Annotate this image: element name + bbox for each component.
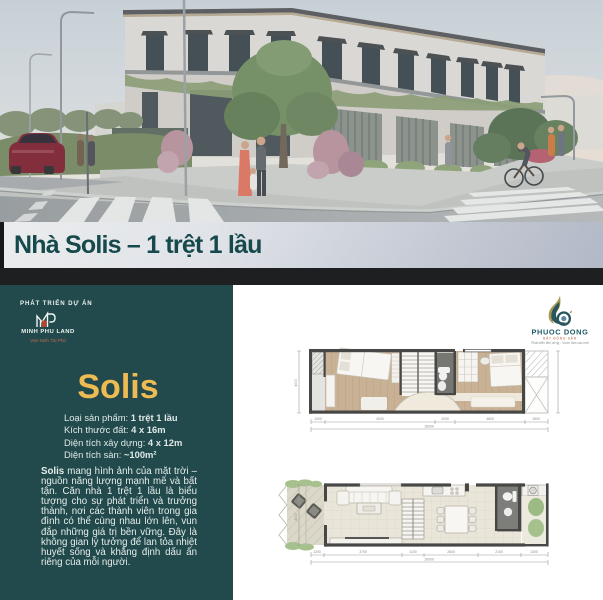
svg-text:16000: 16000: [424, 557, 434, 561]
svg-text:Phát triển bền vững - Vươn tầm: Phát triển bền vững - Vươn tầm cao mới: [531, 341, 589, 345]
svg-text:1500: 1500: [532, 417, 540, 421]
svg-text:3700: 3700: [359, 550, 367, 554]
svg-text:4000: 4000: [294, 513, 298, 521]
svg-text:PHUOC DONG: PHUOC DONG: [532, 328, 589, 337]
svg-text:1300: 1300: [530, 550, 538, 554]
svg-text:16000: 16000: [424, 424, 434, 428]
svg-text:1200: 1200: [314, 417, 322, 421]
svg-text:2600: 2600: [447, 550, 455, 554]
svg-text:2100: 2100: [495, 550, 503, 554]
svg-text:4000: 4000: [294, 379, 298, 387]
svg-text:BẤT ĐỘNG SẢN: BẤT ĐỘNG SẢN: [543, 336, 577, 341]
svg-text:4000: 4000: [376, 417, 384, 421]
svg-text:4600: 4600: [486, 417, 494, 421]
svg-text:2000: 2000: [441, 417, 449, 421]
svg-text:1100: 1100: [409, 550, 416, 554]
svg-text:1200: 1200: [313, 550, 321, 554]
